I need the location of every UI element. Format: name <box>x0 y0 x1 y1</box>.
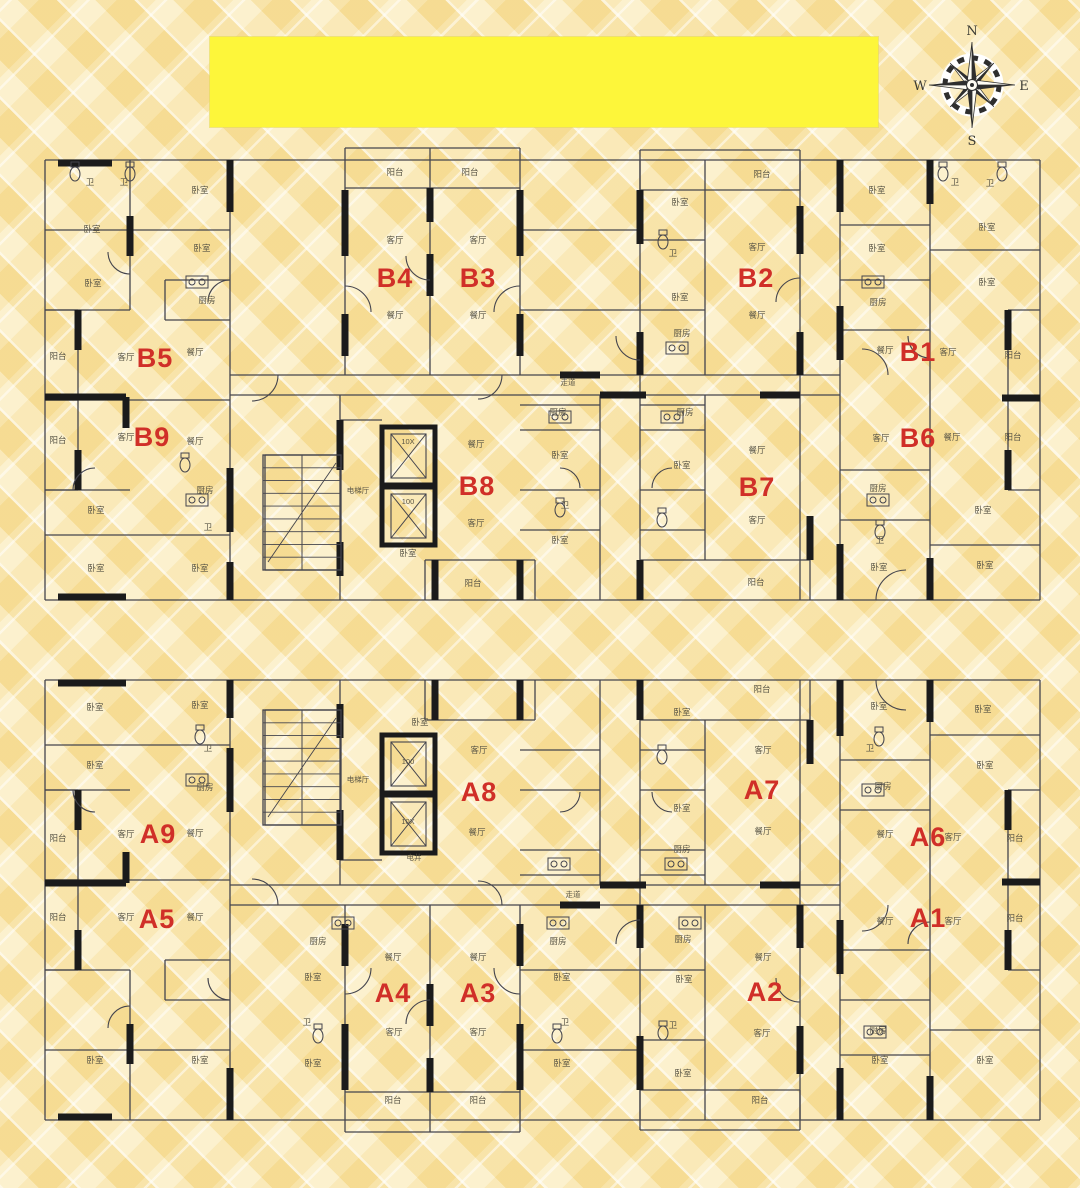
stove-icon <box>867 494 889 506</box>
stove-icon <box>862 784 884 796</box>
room-label: 阳台 <box>751 1095 768 1105</box>
room-label: 厨房 <box>674 934 691 944</box>
unit-label-B7: B7 <box>739 472 776 502</box>
compass-w: W <box>913 79 927 94</box>
room-label: 卧室 <box>551 535 569 545</box>
room-label: 卧室 <box>870 701 888 711</box>
toilet-icon <box>552 1029 562 1043</box>
room-label: 卧室 <box>673 460 691 470</box>
floor-plan-upper-B: 阳台阳台阳台阳台阳台阳台阳台阳台阳台客厅客厅客厅客厅客厅客厅客厅客厅客厅餐厅餐厅… <box>45 148 1040 600</box>
toilet-icon <box>874 732 884 746</box>
unit-label-B4: B4 <box>377 263 414 293</box>
toilet-icon <box>125 167 135 181</box>
room-label: 厨房 <box>869 297 886 307</box>
unit-label-A9: A9 <box>140 819 177 849</box>
room-label: 阳台 <box>1006 913 1023 923</box>
room-label: 卧室 <box>84 278 102 288</box>
toilet-icon <box>997 167 1007 181</box>
room-label: 卧室 <box>83 224 101 234</box>
room-label: 卧室 <box>551 450 569 460</box>
room-label: 厨房 <box>309 936 326 946</box>
room-label: 阳台 <box>753 169 770 179</box>
room-label: 阳台 <box>1006 833 1023 843</box>
room-label: 客厅 <box>117 352 135 362</box>
room-label: 卧室 <box>868 243 886 253</box>
room-label: 卧室 <box>870 562 888 572</box>
room-label: 餐厅 <box>384 952 402 962</box>
room-label: 客厅 <box>117 432 135 442</box>
stairwell <box>263 710 341 825</box>
elevator-shaft <box>382 487 435 545</box>
stove-icon <box>665 858 687 870</box>
room-label: 餐厅 <box>943 432 961 442</box>
floor-plans: 阳台阳台阳台阳台阳台阳台阳台阳台阳台客厅客厅客厅客厅客厅客厅客厅客厅客厅餐厅餐厅… <box>0 0 1080 1188</box>
room-label: 客厅 <box>117 912 135 922</box>
room-label: 卧室 <box>868 185 886 195</box>
room-label: 客厅 <box>117 829 135 839</box>
stairwell <box>263 455 341 570</box>
room-label: 卫 <box>561 1017 570 1027</box>
stove-icon <box>547 917 569 929</box>
room-label: 卧室 <box>304 1058 322 1068</box>
room-label: 卧室 <box>674 1068 692 1078</box>
room-label: 客厅 <box>467 518 485 528</box>
room-label: 卧室 <box>191 1055 209 1065</box>
room-label: 餐厅 <box>186 828 204 838</box>
stove-icon <box>679 917 701 929</box>
stove-icon <box>186 276 208 288</box>
room-label: 阳台 <box>49 912 66 922</box>
compass-hub-dot <box>970 83 974 87</box>
toilet-icon <box>555 503 565 517</box>
room-label: 卫 <box>866 743 875 753</box>
unit-label-B6: B6 <box>900 423 937 453</box>
room-label: 卧室 <box>191 700 209 710</box>
room-label: 阳台 <box>49 351 66 361</box>
room-label: 餐厅 <box>386 310 404 320</box>
room-label: 阳台 <box>464 578 481 588</box>
room-label: 餐厅 <box>468 827 486 837</box>
compass-rose: N E S W <box>906 19 1038 151</box>
room-label: 阳台 <box>1004 350 1021 360</box>
floorplan-sheet: N E S W 阳台阳台阳台阳台阳台阳台阳台阳台阳台客厅客厅客厅客厅客厅客厅客厅… <box>0 0 1080 1188</box>
room-label: 卧室 <box>976 1055 994 1065</box>
unit-label-A1: A1 <box>910 903 947 933</box>
room-label: 卧室 <box>86 760 104 770</box>
room-label: 阳台 <box>1004 432 1021 442</box>
room-label: 厨房 <box>874 781 891 791</box>
room-label: 卫 <box>669 248 678 258</box>
unit-label-A3: A3 <box>460 978 497 1008</box>
room-label: 卧室 <box>193 243 211 253</box>
room-label: 卫 <box>561 500 570 510</box>
room-label: 客厅 <box>753 1028 771 1038</box>
room-label: 厨房 <box>196 782 213 792</box>
room-label: 卧室 <box>87 563 105 573</box>
room-label: 客厅 <box>386 235 404 245</box>
toilet-icon <box>938 167 948 181</box>
unit-label-B9: B9 <box>134 422 171 452</box>
room-label: 阳台 <box>469 1095 486 1105</box>
room-label: 餐厅 <box>467 439 485 449</box>
room-label: 阳台 <box>49 833 66 843</box>
room-label: 卧室 <box>976 560 994 570</box>
room-label: 卧室 <box>671 197 689 207</box>
room-label: 卫 <box>204 522 213 532</box>
room-label: 餐厅 <box>186 436 204 446</box>
room-label: 卧室 <box>673 803 691 813</box>
toilet-icon <box>180 458 190 472</box>
room-label: 餐厅 <box>754 826 772 836</box>
toilet-icon <box>875 525 885 539</box>
room-label: 卧室 <box>399 548 417 558</box>
room-label: 餐厅 <box>876 345 894 355</box>
compass-n: N <box>966 24 977 39</box>
room-label: 卧室 <box>553 972 571 982</box>
room-label: 卫 <box>204 743 213 753</box>
room-label: 餐厅 <box>186 912 204 922</box>
floor-plan-lower-A: 阳台阳台阳台阳台阳台阳台阳台阳台客厅客厅客厅客厅客厅客厅客厅客厅客厅餐厅餐厅餐厅… <box>45 680 1040 1132</box>
room-label: 卧室 <box>675 974 693 984</box>
small-label: 走道 <box>566 889 581 899</box>
elevator-shaft <box>382 795 435 853</box>
room-label: 卧室 <box>978 277 996 287</box>
room-label: 阳台 <box>386 167 403 177</box>
room-label: 餐厅 <box>186 347 204 357</box>
room-label: 厨房 <box>549 407 566 417</box>
room-label: 卫 <box>986 178 995 188</box>
room-label: 餐厅 <box>876 916 894 926</box>
unit-label-B8: B8 <box>459 471 496 501</box>
room-label: 客厅 <box>748 515 766 525</box>
small-label: 电梯厅 <box>347 485 370 495</box>
room-label: 客厅 <box>470 745 488 755</box>
stove-icon <box>186 774 208 786</box>
room-label: 卫 <box>876 535 885 545</box>
toilet-icon <box>657 513 667 527</box>
room-label: 卧室 <box>86 1055 104 1065</box>
room-label: 阳台 <box>747 577 764 587</box>
room-label: 客厅 <box>944 916 962 926</box>
unit-label-A8: A8 <box>461 777 498 807</box>
room-label: 厨房 <box>198 295 215 305</box>
small-label: 100 <box>402 497 415 506</box>
room-label: 餐厅 <box>754 952 772 962</box>
stove-icon <box>332 917 354 929</box>
room-label: 卧室 <box>304 972 322 982</box>
room-label: 卧室 <box>871 1055 889 1065</box>
unit-label-A6: A6 <box>910 822 947 852</box>
room-label: 餐厅 <box>748 310 766 320</box>
room-label: 阳台 <box>49 435 66 445</box>
stove-icon <box>666 342 688 354</box>
stove-icon <box>864 1026 886 1038</box>
room-label: 厨房 <box>673 844 690 854</box>
room-label: 阳台 <box>384 1095 401 1105</box>
room-label: 客厅 <box>469 1027 487 1037</box>
small-label: 走道 <box>561 377 576 387</box>
room-label: 客厅 <box>748 242 766 252</box>
elevator-shaft <box>382 735 435 793</box>
stove-icon <box>549 411 571 423</box>
room-label: 卧室 <box>86 702 104 712</box>
stove-icon <box>862 276 884 288</box>
unit-label-B2: B2 <box>738 263 775 293</box>
room-label: 餐厅 <box>469 952 487 962</box>
room-label: 阳台 <box>461 167 478 177</box>
room-label: 阳台 <box>753 684 770 694</box>
room-label: 厨房 <box>549 936 566 946</box>
toilet-icon <box>657 750 667 764</box>
room-label: 厨房 <box>196 485 213 495</box>
small-label: 100 <box>402 757 415 766</box>
room-label: 卧室 <box>553 1058 571 1068</box>
room-label: 客厅 <box>944 832 962 842</box>
room-label: 厨房 <box>673 328 690 338</box>
room-label: 卧室 <box>411 717 429 727</box>
room-label: 卧室 <box>191 185 209 195</box>
room-label: 卧室 <box>974 505 992 515</box>
room-label: 厨房 <box>676 407 693 417</box>
unit-label-A7: A7 <box>744 775 781 805</box>
room-label: 卧室 <box>974 704 992 714</box>
small-label: 电梯厅 <box>347 774 370 784</box>
elevator-shaft <box>382 427 435 485</box>
toilet-icon <box>195 730 205 744</box>
stove-icon <box>186 494 208 506</box>
room-label: 厨房 <box>869 1025 886 1035</box>
room-label: 客厅 <box>754 745 772 755</box>
small-label: 10X <box>401 817 414 826</box>
room-label: 客厅 <box>939 347 957 357</box>
unit-label-A4: A4 <box>375 978 412 1008</box>
unit-label-B3: B3 <box>460 263 497 293</box>
room-label: 卧室 <box>671 292 689 302</box>
room-label: 客厅 <box>469 235 487 245</box>
unit-label-A2: A2 <box>747 977 784 1007</box>
stove-icon <box>548 858 570 870</box>
room-label: 卫 <box>951 177 960 187</box>
room-label: 卧室 <box>673 707 691 717</box>
title-redaction <box>210 37 878 127</box>
room-label: 卫 <box>120 177 129 187</box>
toilet-icon <box>313 1029 323 1043</box>
room-label: 厨房 <box>869 483 886 493</box>
room-label: 卧室 <box>87 505 105 515</box>
toilet-icon <box>658 235 668 249</box>
unit-label-B1: B1 <box>900 337 937 367</box>
unit-label-A5: A5 <box>139 904 176 934</box>
toilet-icon <box>658 1026 668 1040</box>
small-label: 电井 <box>407 852 422 862</box>
room-label: 餐厅 <box>876 829 894 839</box>
room-label: 卫 <box>669 1020 678 1030</box>
room-label: 卫 <box>86 177 95 187</box>
room-label: 卧室 <box>191 563 209 573</box>
toilet-icon <box>70 167 80 181</box>
small-label: 10X <box>401 437 414 446</box>
room-label: 卧室 <box>976 760 994 770</box>
stove-icon <box>661 411 683 423</box>
room-label: 客厅 <box>872 433 890 443</box>
compass-e: E <box>1019 79 1029 94</box>
room-label: 餐厅 <box>748 445 766 455</box>
room-label: 卫 <box>303 1017 312 1027</box>
room-label: 客厅 <box>385 1027 403 1037</box>
compass-s: S <box>968 134 977 149</box>
room-label: 卧室 <box>978 222 996 232</box>
room-label: 餐厅 <box>469 310 487 320</box>
unit-label-B5: B5 <box>137 343 174 373</box>
